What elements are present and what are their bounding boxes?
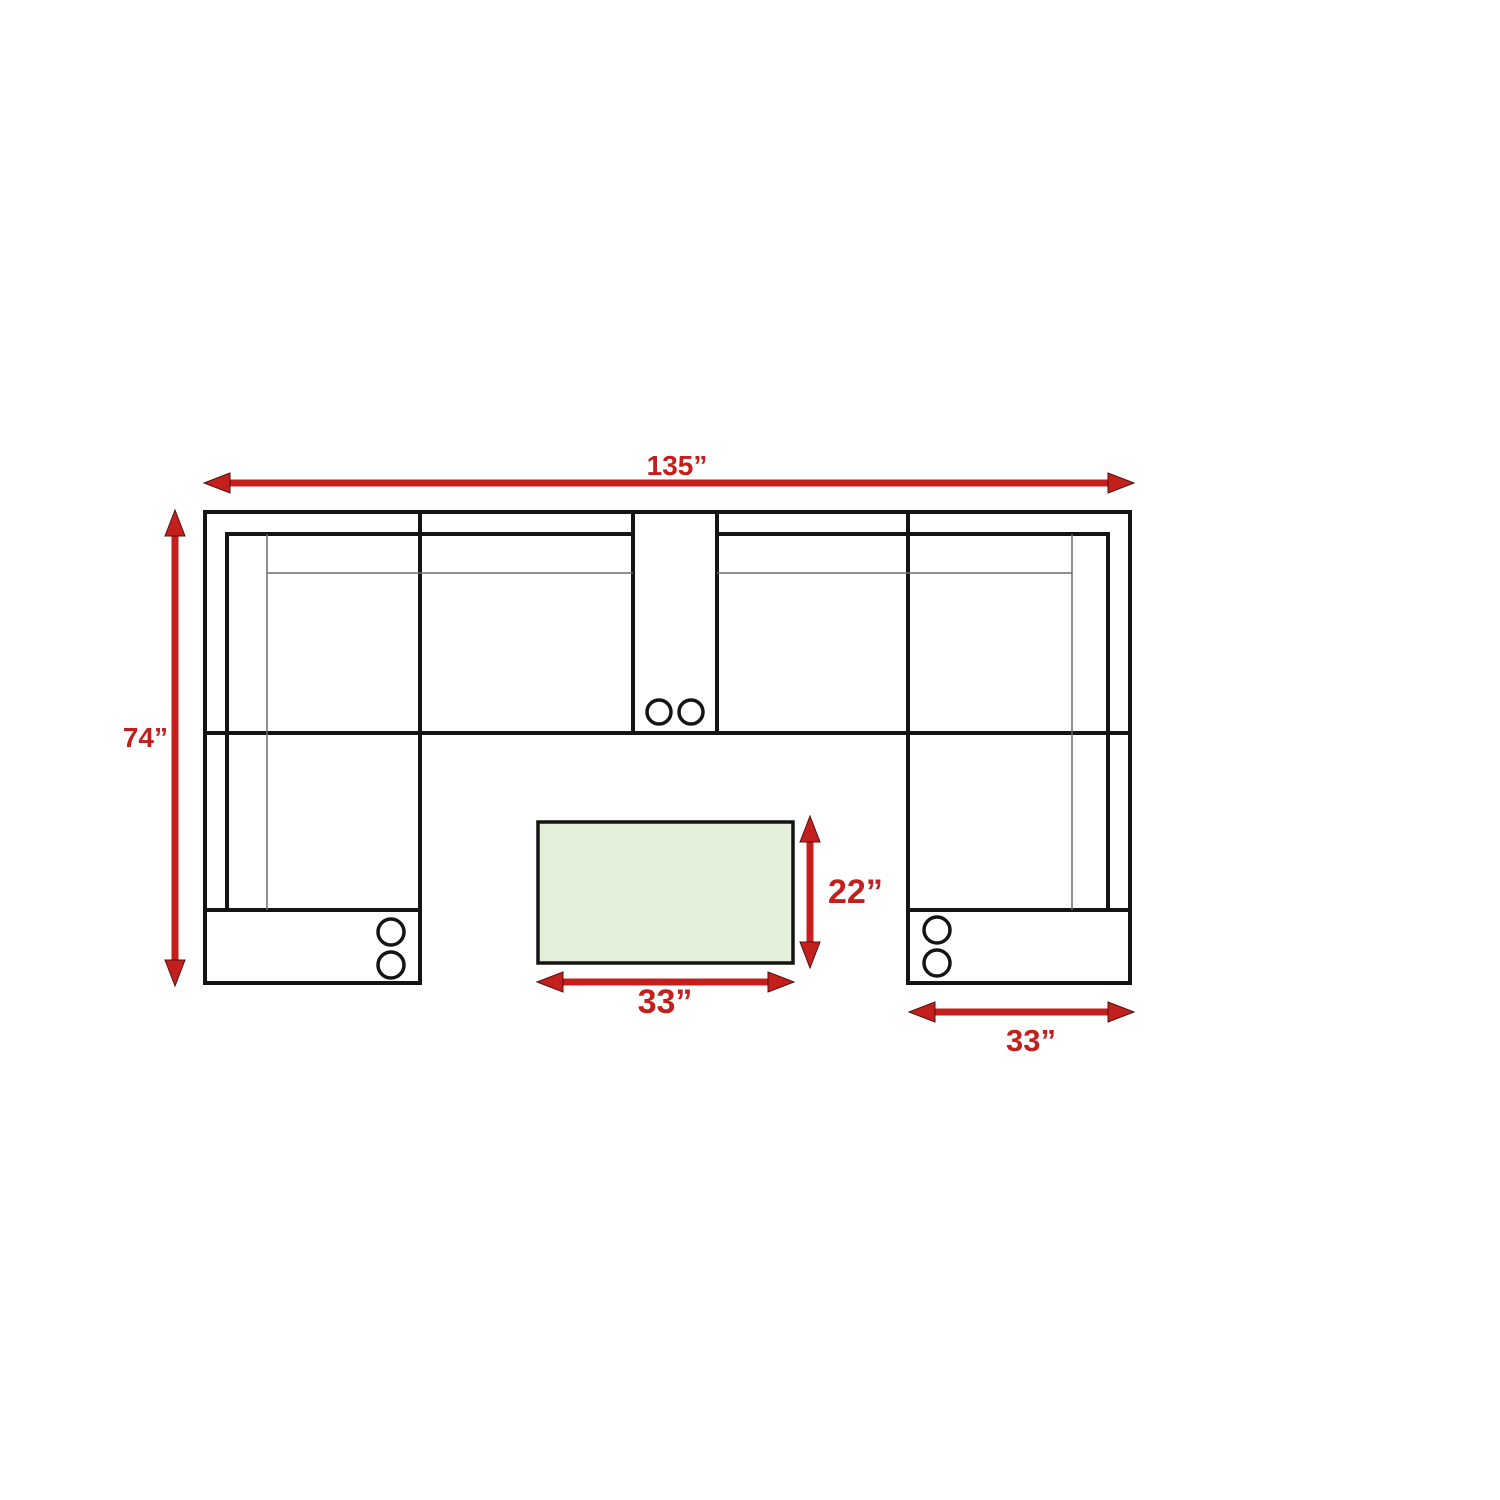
cupholder-icon — [924, 917, 950, 943]
dim-label-table-depth: 22” — [828, 873, 883, 911]
arrowhead-left-icon — [204, 473, 230, 493]
dim-overall-depth: 74” — [123, 510, 185, 986]
arrowhead-up-icon — [165, 510, 185, 536]
arrowhead-right-icon — [768, 972, 794, 992]
arrowhead-down-icon — [165, 960, 185, 986]
console-cupholders — [647, 700, 703, 724]
left-arm-cupholders — [378, 919, 404, 978]
dim-table-width: 33” — [537, 972, 794, 1021]
sectional-floor-plan: 135” 74” 22” 33” 33” — [0, 0, 1500, 1500]
arrowhead-left-icon — [909, 1002, 935, 1022]
cupholder-icon — [924, 950, 950, 976]
arrowhead-left-icon — [537, 972, 563, 992]
dim-label-overall-depth: 74” — [123, 722, 168, 753]
coffee-table — [538, 822, 793, 963]
dim-label-table-width: 33” — [638, 983, 693, 1021]
cupholder-icon — [378, 919, 404, 945]
arrowhead-up-icon — [800, 816, 820, 842]
arrowhead-right-icon — [1108, 1002, 1134, 1022]
right-arm-cupholders — [924, 917, 950, 976]
cupholder-icon — [378, 952, 404, 978]
diagram-canvas: 135” 74” 22” 33” 33” — [0, 0, 1500, 1500]
dim-label-right-chaise-width: 33” — [1006, 1023, 1056, 1058]
dim-overall-width: 135” — [204, 450, 1134, 493]
arrowhead-right-icon — [1108, 473, 1134, 493]
dim-label-overall-width: 135” — [647, 450, 708, 481]
cupholder-icon — [679, 700, 703, 724]
dim-table-depth: 22” — [800, 816, 883, 968]
cupholder-icon — [647, 700, 671, 724]
dim-right-chaise-width: 33” — [909, 1002, 1134, 1058]
arrowhead-down-icon — [800, 942, 820, 968]
